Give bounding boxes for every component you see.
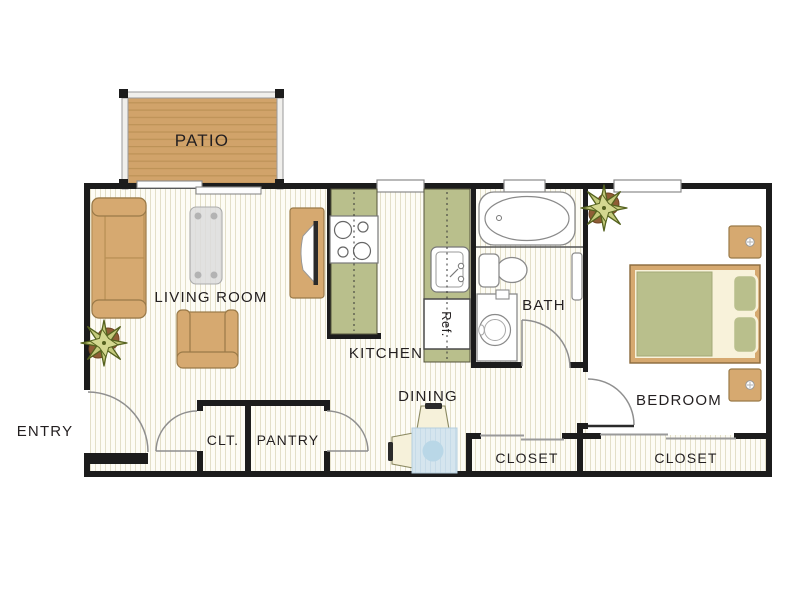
sofa: [92, 198, 146, 318]
patio-railing-top: [122, 92, 283, 98]
sofa-armrest: [92, 300, 146, 318]
sink-faucet: [458, 276, 463, 281]
coffee-table: [190, 207, 222, 284]
wall-bedroom-closet-stub-right: [734, 433, 766, 439]
room-label-bath: BATH: [522, 297, 566, 314]
nightstand: [729, 226, 761, 258]
burner: [358, 222, 368, 232]
room-label-closet-hall: CLOSET: [495, 450, 558, 466]
sofa-armrest: [92, 198, 146, 216]
patio-post: [119, 89, 128, 98]
patio-railing-left: [122, 92, 128, 189]
bed-duvet: [637, 272, 712, 356]
wall-hall-closet-stub-left: [466, 433, 481, 439]
bath-wall-cabinet: [572, 253, 582, 300]
wall-bath-bottom: [471, 362, 522, 368]
wall-bath-left: [471, 185, 476, 368]
patio-slider-panel: [137, 181, 202, 188]
vanity-faucet: [496, 290, 509, 299]
dining-table-centerpiece: [423, 441, 444, 462]
armchair-seat: [188, 312, 227, 355]
wall-pantry-right-upper: [324, 400, 330, 411]
toilet-bowl: [497, 258, 527, 283]
tv-console: [290, 208, 324, 298]
wall-closet-divider: [577, 423, 583, 477]
room-label-bedroom: BEDROOM: [636, 392, 722, 409]
kitchen-sink-basin: [436, 252, 463, 287]
wall-clt-pantry-top: [197, 400, 330, 406]
wall-hall-closet-left: [466, 433, 472, 477]
patio-railing-right: [277, 92, 283, 189]
room-label-pantry: PANTRY: [257, 432, 320, 448]
armchair-back: [177, 352, 238, 368]
dining-chair-back: [388, 442, 393, 461]
room-label-patio: PATIO: [175, 131, 230, 150]
vanity-soap-dish: [479, 325, 485, 335]
room-label-kitchen: KITCHEN: [349, 345, 423, 362]
floorplan-page: Ref.: [0, 0, 800, 600]
room-label-closet-bedroom: CLOSET: [654, 450, 717, 466]
sofa-back: [92, 210, 105, 306]
room-label-clt: CLT.: [207, 432, 240, 448]
potted-plant-living: [81, 320, 127, 366]
room-label-living-room: LIVING ROOM: [154, 289, 267, 306]
wall-entry-stub: [84, 453, 148, 464]
window-bedroom: [614, 180, 681, 192]
armchair: [177, 310, 238, 368]
wall-exterior-right: [766, 183, 772, 477]
bed-pillow: [733, 316, 757, 353]
potted-plant-bedroom: [581, 185, 627, 231]
room-label-dining: DINING: [398, 388, 458, 405]
burner: [338, 247, 348, 257]
sofa-cushion: [105, 258, 144, 302]
burner: [335, 222, 352, 239]
patio-post: [275, 89, 284, 98]
toilet-tank: [479, 254, 499, 287]
nightstand: [729, 369, 761, 401]
wall-clt-pantry-divider: [245, 406, 251, 477]
wall-clt-left-lower: [197, 451, 203, 477]
wall-bath-right: [583, 185, 588, 372]
sofa-cushion: [105, 214, 144, 258]
wall-hall-closet-stub-right: [562, 433, 577, 439]
burner: [354, 243, 371, 260]
room-label-entry: ENTRY: [17, 423, 74, 440]
wall-bedroom-door-stub: [577, 423, 588, 429]
dining-chair: [417, 406, 449, 429]
dining-chair: [392, 433, 413, 468]
wall-clt-left-upper: [197, 400, 203, 411]
floorplan-drawing: Ref.: [0, 0, 800, 600]
window-kitchen: [377, 180, 424, 192]
wall-bedroom-closet-stub-left: [583, 433, 601, 439]
bathtub-basin: [485, 197, 569, 241]
window-bath: [504, 180, 545, 192]
patio-slider-panel: [196, 187, 261, 194]
wall-pantry-right-lower: [324, 451, 330, 477]
bed: [630, 265, 760, 363]
vanity-basin-inner: [485, 320, 506, 341]
bed-pillow: [733, 275, 757, 312]
sink-faucet: [458, 263, 463, 268]
tv-screen: [314, 221, 319, 285]
